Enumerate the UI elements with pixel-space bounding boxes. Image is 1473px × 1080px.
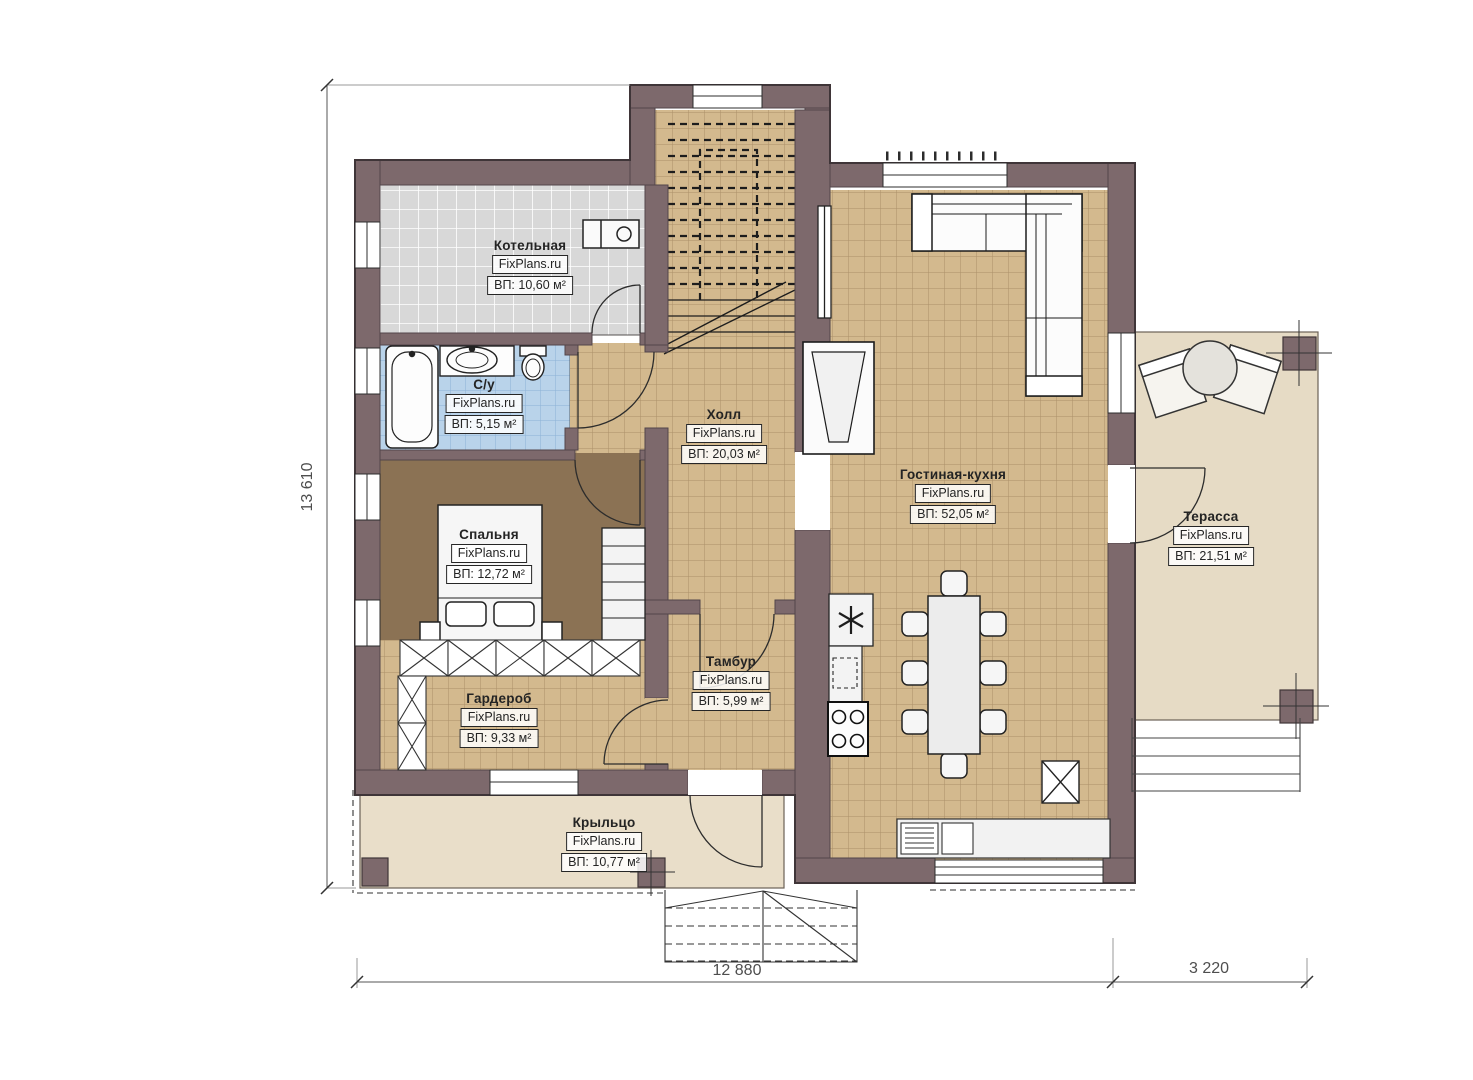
room-name: Холл — [707, 407, 742, 422]
brand-badge: FixPlans.ru — [461, 708, 538, 727]
room-area: ВП: 10,60 м² — [487, 276, 573, 295]
boiler-unit — [583, 220, 639, 248]
room-label-boiler-room: Котельная FixPlans.ru ВП: 10,60 м² — [487, 238, 573, 295]
kitchen-counter-bottom — [897, 819, 1110, 858]
room-area: ВП: 5,99 м² — [692, 692, 771, 711]
brand-badge: FixPlans.ru — [1173, 526, 1250, 545]
terrace-table — [1183, 341, 1237, 395]
room-label-hall: Холл FixPlans.ru ВП: 20,03 м² — [681, 407, 767, 464]
toilet — [520, 346, 546, 380]
brand-badge: FixPlans.ru — [446, 394, 523, 413]
room-label-porch: Крыльцо FixPlans.ru ВП: 10,77 м² — [561, 815, 647, 872]
brand-badge: FixPlans.ru — [451, 544, 528, 563]
room-area: ВП: 5,15 м² — [445, 415, 524, 434]
stove — [828, 702, 868, 756]
brand-badge: FixPlans.ru — [566, 832, 643, 851]
room-label-living-kitchen: Гостиная-кухня FixPlans.ru ВП: 52,05 м² — [900, 467, 1006, 524]
bathtub — [386, 346, 438, 448]
room-area: ВП: 10,77 м² — [561, 853, 647, 872]
room-label-wardrobe: Гардероб FixPlans.ru ВП: 9,33 м² — [460, 691, 539, 748]
floor-plan: Котельная FixPlans.ru ВП: 10,60 м² С/у F… — [0, 0, 1473, 1080]
room-name: Терасса — [1184, 509, 1239, 524]
brand-badge: FixPlans.ru — [693, 671, 770, 690]
room-area: ВП: 9,33 м² — [460, 729, 539, 748]
room-area: ВП: 12,72 м² — [446, 565, 532, 584]
brand-badge: FixPlans.ru — [915, 484, 992, 503]
room-label-bathroom: С/у FixPlans.ru ВП: 5,15 м² — [445, 377, 524, 434]
brand-badge: FixPlans.ru — [492, 255, 569, 274]
dimension-terrace-width: 3 220 — [1189, 960, 1229, 978]
fireplace — [803, 342, 874, 454]
bedroom-closet — [602, 528, 645, 640]
room-label-bedroom: Спальня FixPlans.ru ВП: 12,72 м² — [446, 527, 532, 584]
room-label-terrace: Терасса FixPlans.ru ВП: 21,51 м² — [1168, 509, 1254, 566]
room-name: Крыльцо — [573, 815, 636, 830]
room-area: ВП: 20,03 м² — [681, 445, 767, 464]
brand-badge: FixPlans.ru — [686, 424, 763, 443]
room-area: ВП: 21,51 м² — [1168, 547, 1254, 566]
room-name: Гардероб — [466, 691, 531, 706]
tv-panel — [818, 206, 831, 318]
room-name: Котельная — [494, 238, 566, 253]
room-name: С/у — [473, 377, 495, 392]
room-name: Тамбур — [706, 654, 756, 669]
room-name: Гостиная-кухня — [900, 467, 1006, 482]
fridge — [829, 594, 873, 646]
room-label-vestibule: Тамбур FixPlans.ru ВП: 5,99 м² — [692, 654, 771, 711]
room-area: ВП: 52,05 м² — [910, 505, 996, 524]
dimension-house-width: 12 880 — [713, 962, 762, 980]
kitchen-counter-left — [829, 646, 862, 702]
dimension-house-height: 13 610 — [299, 463, 317, 512]
terrace-steps — [1132, 718, 1300, 792]
chimney-pillar — [1042, 761, 1079, 803]
room-name: Спальня — [459, 527, 519, 542]
sink — [440, 346, 514, 376]
